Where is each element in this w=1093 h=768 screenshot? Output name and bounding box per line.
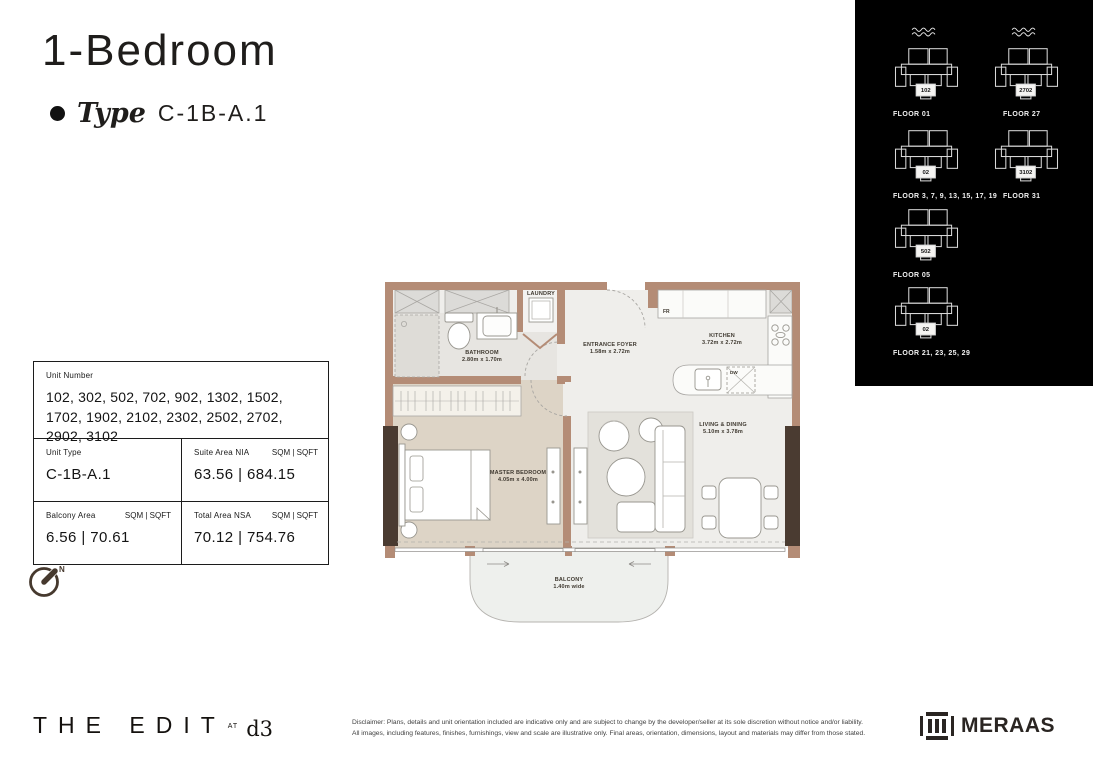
total-area-cell: Total Area NSA SQM | SQFT 70.12 | 754.76 xyxy=(181,502,328,564)
room-label-living: LIVING & DINING 5.10m x 3.78m xyxy=(688,422,758,437)
brand-d3-logo: d3 xyxy=(246,717,273,741)
floor-plate: 3102 xyxy=(991,127,1062,189)
waves-icon xyxy=(1011,27,1037,38)
foyer-dims: 1.58m x 2.72m xyxy=(580,349,640,356)
kitchen-sink xyxy=(695,369,721,390)
bathroom-dims: 2.80m x 1.70m xyxy=(437,357,527,364)
living-name: LIVING & DINING xyxy=(699,422,747,428)
unit-number-badge: 02 xyxy=(922,170,929,176)
floor-plate-panel: 102 FLOOR 01 2702 FLOOR 27 02 FLOOR 3, 7… xyxy=(855,0,1093,386)
foyer-name: ENTRANCE FOYER xyxy=(583,342,637,348)
type-label: Type xyxy=(77,98,146,129)
total-area-value: 70.12 | 754.76 xyxy=(194,529,318,546)
floor-plate: 2702 xyxy=(991,45,1062,107)
meraas-logo: MERAAS xyxy=(920,709,1055,743)
floor-plate-label: FLOOR 31 xyxy=(1003,193,1040,200)
floor-plate: 102 xyxy=(891,45,962,107)
brand-at: AT xyxy=(228,723,238,730)
window-frame-right xyxy=(785,426,800,546)
floor-plan: FR DW xyxy=(383,280,803,625)
kitchen-dims: 3.72m x 2.72m xyxy=(692,340,752,347)
disclaimer-line2: All images, including features, finishes… xyxy=(352,728,882,739)
unit-number-values: 102, 302, 502, 702, 902, 1302, 1502, 170… xyxy=(46,388,318,447)
room-label-bedroom: MASTER BEDROOM 4.05m x 4.00m xyxy=(488,470,548,485)
balcony-name: BALCONY xyxy=(555,577,584,583)
room-label-balcony: BALCONY 1.40m wide xyxy=(534,577,604,592)
total-area-units: SQM | SQFT xyxy=(272,511,318,520)
balcony-area-cell: Balcony Area SQM | SQFT 6.56 | 70.61 xyxy=(34,502,181,564)
unit-number-cell: Unit Number 102, 302, 502, 702, 902, 130… xyxy=(34,362,328,438)
fridge-label: FR xyxy=(663,309,670,315)
floor-plate: 02 xyxy=(891,127,962,189)
brochure-page: 1-Bedroom Type C-1B-A.1 Unit Number 102,… xyxy=(0,0,1093,768)
compass-icon: N xyxy=(27,560,75,607)
disclaimer-text: Disclaimer: Plans, details and unit orie… xyxy=(352,717,882,739)
balcony-area-value: 6.56 | 70.61 xyxy=(46,529,171,546)
north-label: N xyxy=(59,565,65,574)
unit-number-badge: 102 xyxy=(921,88,932,94)
bedroom-name: MASTER BEDROOM xyxy=(490,470,546,476)
unit-type-cell: Unit Type C-1B-A.1 xyxy=(34,439,181,501)
unit-number-badge: 502 xyxy=(921,249,932,255)
suite-area-value: 63.56 | 684.15 xyxy=(194,466,318,483)
dishwasher-label: DW xyxy=(730,370,738,375)
brand-wordmark: THE EDIT xyxy=(33,712,226,739)
brand-logo: THE EDIT AT d3 xyxy=(33,712,273,739)
unit-type-label: Unit Type xyxy=(46,448,171,457)
disclaimer-line1: Disclaimer: Plans, details and unit orie… xyxy=(352,717,882,728)
room-label-foyer: ENTRANCE FOYER 1.58m x 2.72m xyxy=(580,342,640,357)
window-frame-left xyxy=(383,426,398,546)
unit-number-badge: 3102 xyxy=(1019,170,1033,176)
bathroom-name: BATHROOM xyxy=(465,350,499,356)
floor-plate-label: FLOOR 01 xyxy=(893,111,930,118)
suite-area-cell: Suite Area NIA SQM | SQFT 63.56 | 684.15 xyxy=(181,439,328,501)
kitchen-name: KITCHEN xyxy=(709,333,735,339)
room-label-bathroom: BATHROOM 2.80m x 1.70m xyxy=(437,350,527,365)
unit-info-table: Unit Number 102, 302, 502, 702, 902, 130… xyxy=(33,361,329,565)
waves-icon xyxy=(911,27,937,38)
unit-type-heading: Type C-1B-A.1 xyxy=(50,98,268,129)
room-label-kitchen: KITCHEN 3.72m x 2.72m xyxy=(692,333,752,348)
floor-plate-label: FLOOR 3, 7, 9, 13, 15, 17, 19 xyxy=(893,193,997,200)
suite-area-units: SQM | SQFT xyxy=(272,448,318,457)
balcony-dims: 1.40m wide xyxy=(534,584,604,591)
room-label-laundry: LAUNDRY xyxy=(521,291,561,298)
floor-plate-label: FLOOR 21, 23, 25, 29 xyxy=(893,350,970,357)
laundry-name: LAUNDRY xyxy=(527,291,555,297)
wardrobe xyxy=(393,386,521,416)
meraas-icon xyxy=(920,709,954,743)
floor-plate-label: FLOOR 05 xyxy=(893,272,930,279)
unit-number-label: Unit Number xyxy=(46,371,318,380)
unit-number-badge: 02 xyxy=(922,327,929,333)
type-value: C-1B-A.1 xyxy=(158,100,269,127)
floor-plate: 02 xyxy=(891,284,962,346)
unit-number-badge: 2702 xyxy=(1019,88,1033,94)
meraas-wordmark: MERAAS xyxy=(961,714,1055,738)
balcony-area-units: SQM | SQFT xyxy=(125,511,171,520)
floor-plate-label: FLOOR 27 xyxy=(1003,111,1040,118)
floor-plate: 502 xyxy=(891,206,962,268)
bullet-icon xyxy=(50,106,65,121)
unit-type-value: C-1B-A.1 xyxy=(46,466,171,483)
washing-machine xyxy=(529,298,553,322)
bedroom-dims: 4.05m x 4.00m xyxy=(488,477,548,484)
living-dims: 5.10m x 3.78m xyxy=(688,429,758,436)
page-title: 1-Bedroom xyxy=(42,26,278,76)
